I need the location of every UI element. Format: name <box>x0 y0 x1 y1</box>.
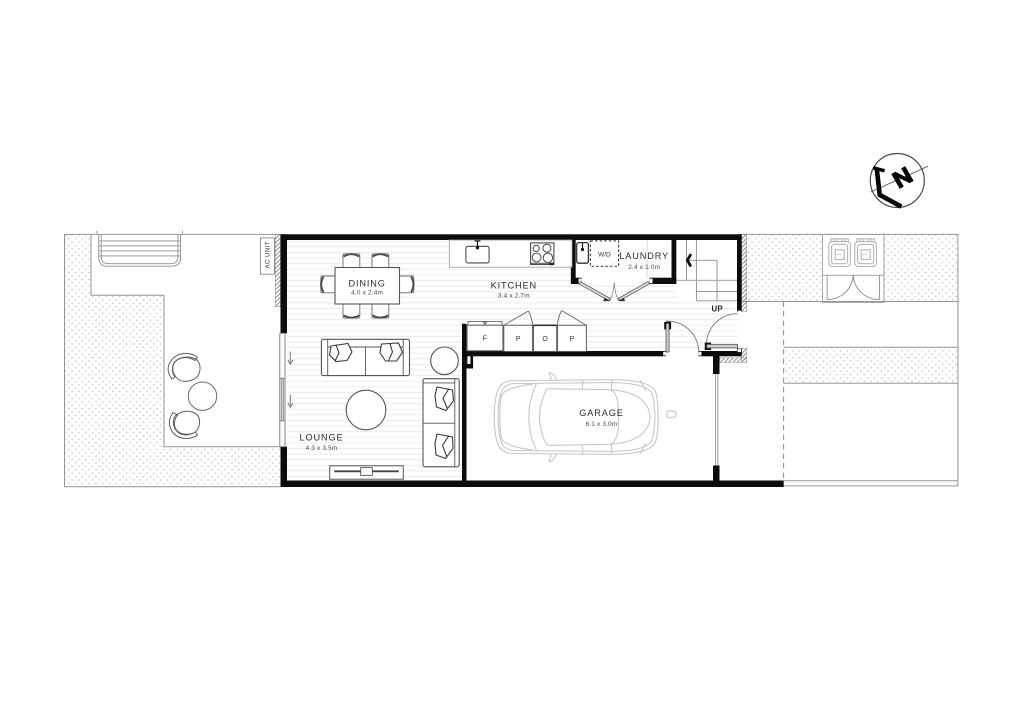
svg-text:UP: UP <box>711 305 722 314</box>
svg-text:4.3 x 3.5m: 4.3 x 3.5m <box>306 445 338 452</box>
svg-text:AC UNIT: AC UNIT <box>265 241 272 269</box>
svg-text:P: P <box>570 336 575 343</box>
svg-text:4.0 x 2.4m: 4.0 x 2.4m <box>351 289 383 296</box>
svg-text:GARAGE: GARAGE <box>579 408 623 418</box>
svg-text:LOUNGE: LOUNGE <box>300 432 344 442</box>
svg-text:6.1 x 3.0m: 6.1 x 3.0m <box>586 421 618 428</box>
svg-text:O: O <box>542 336 548 343</box>
svg-text:2.4 x 1.0m: 2.4 x 1.0m <box>628 264 660 271</box>
svg-text:3.4 x 2.7m: 3.4 x 2.7m <box>498 292 530 299</box>
svg-text:KITCHEN: KITCHEN <box>491 281 537 291</box>
svg-text:LAUNDRY: LAUNDRY <box>619 251 669 261</box>
svg-text:DINING: DINING <box>348 278 385 288</box>
svg-text:F: F <box>483 335 487 342</box>
svg-text:W/D: W/D <box>598 251 611 258</box>
svg-text:P: P <box>516 336 521 343</box>
